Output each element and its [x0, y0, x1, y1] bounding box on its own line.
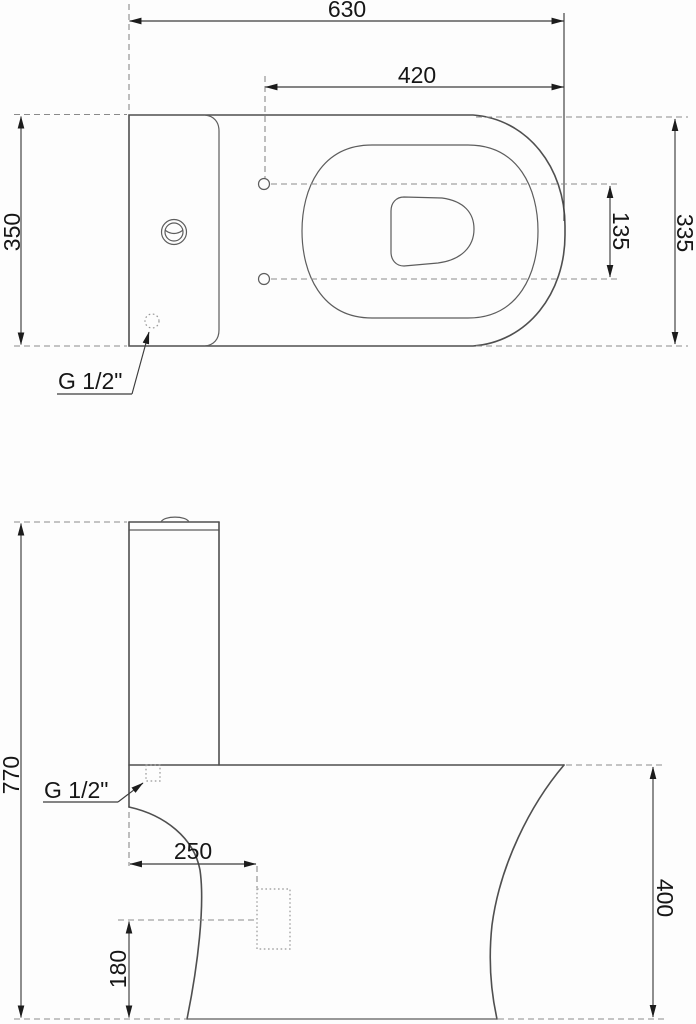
side-view: 770 400 250 180 G 1/2": [0, 517, 678, 1019]
dimension-hinge-spacing: 135: [271, 184, 634, 279]
dimension-total-depth: 630: [129, 0, 564, 221]
dim-label-770: 770: [0, 756, 24, 794]
dim-label-135: 135: [608, 212, 634, 250]
dimension-outlet-distance: 250: [129, 812, 257, 888]
bowl-rear-profile: [490, 765, 564, 1019]
dim-label-250: 250: [174, 838, 212, 864]
plan-hinge-hole-bottom: [259, 274, 270, 285]
dimension-total-height: 770: [0, 522, 186, 1019]
dim-label-180: 180: [105, 950, 131, 988]
dimension-outlet-height: 180: [105, 920, 256, 1018]
dim-label-335: 335: [672, 214, 696, 252]
plan-inlet-hole: [145, 314, 159, 328]
callout-leader: [118, 783, 143, 802]
top-view: 630 420 350 335 135: [0, 0, 696, 394]
plan-seat-ring: [302, 145, 538, 318]
dimension-bowl-width: 335: [476, 117, 696, 346]
plan-flush-button-chord: [166, 231, 183, 234]
technical-drawing: 630 420 350 335 135: [0, 0, 696, 1024]
plan-hinge-hole-top: [259, 179, 270, 190]
inlet-label-plan: G 1/2": [58, 368, 122, 394]
inlet-label-side: G 1/2": [44, 777, 108, 803]
dim-label-400: 400: [652, 879, 678, 917]
dim-label-630: 630: [328, 0, 366, 22]
plan-tank-front-edge: [205, 115, 219, 346]
dimension-bowl-height: 400: [498, 765, 678, 1019]
callout-inlet-plan: G 1/2": [57, 332, 149, 394]
callout-inlet-side: G 1/2": [43, 777, 143, 803]
callout-leader: [132, 332, 149, 394]
drawing-svg: 630 420 350 335 135: [0, 0, 696, 1024]
waste-outlet-hidden: [257, 889, 290, 949]
dimension-tank-width: 350: [0, 115, 127, 347]
plan-bowl-opening: [391, 197, 474, 266]
dim-label-350: 350: [0, 213, 25, 251]
dimension-bowl-depth: 420: [265, 62, 564, 178]
dim-label-420: 420: [398, 62, 436, 88]
inlet-connection-hidden: [146, 765, 160, 781]
